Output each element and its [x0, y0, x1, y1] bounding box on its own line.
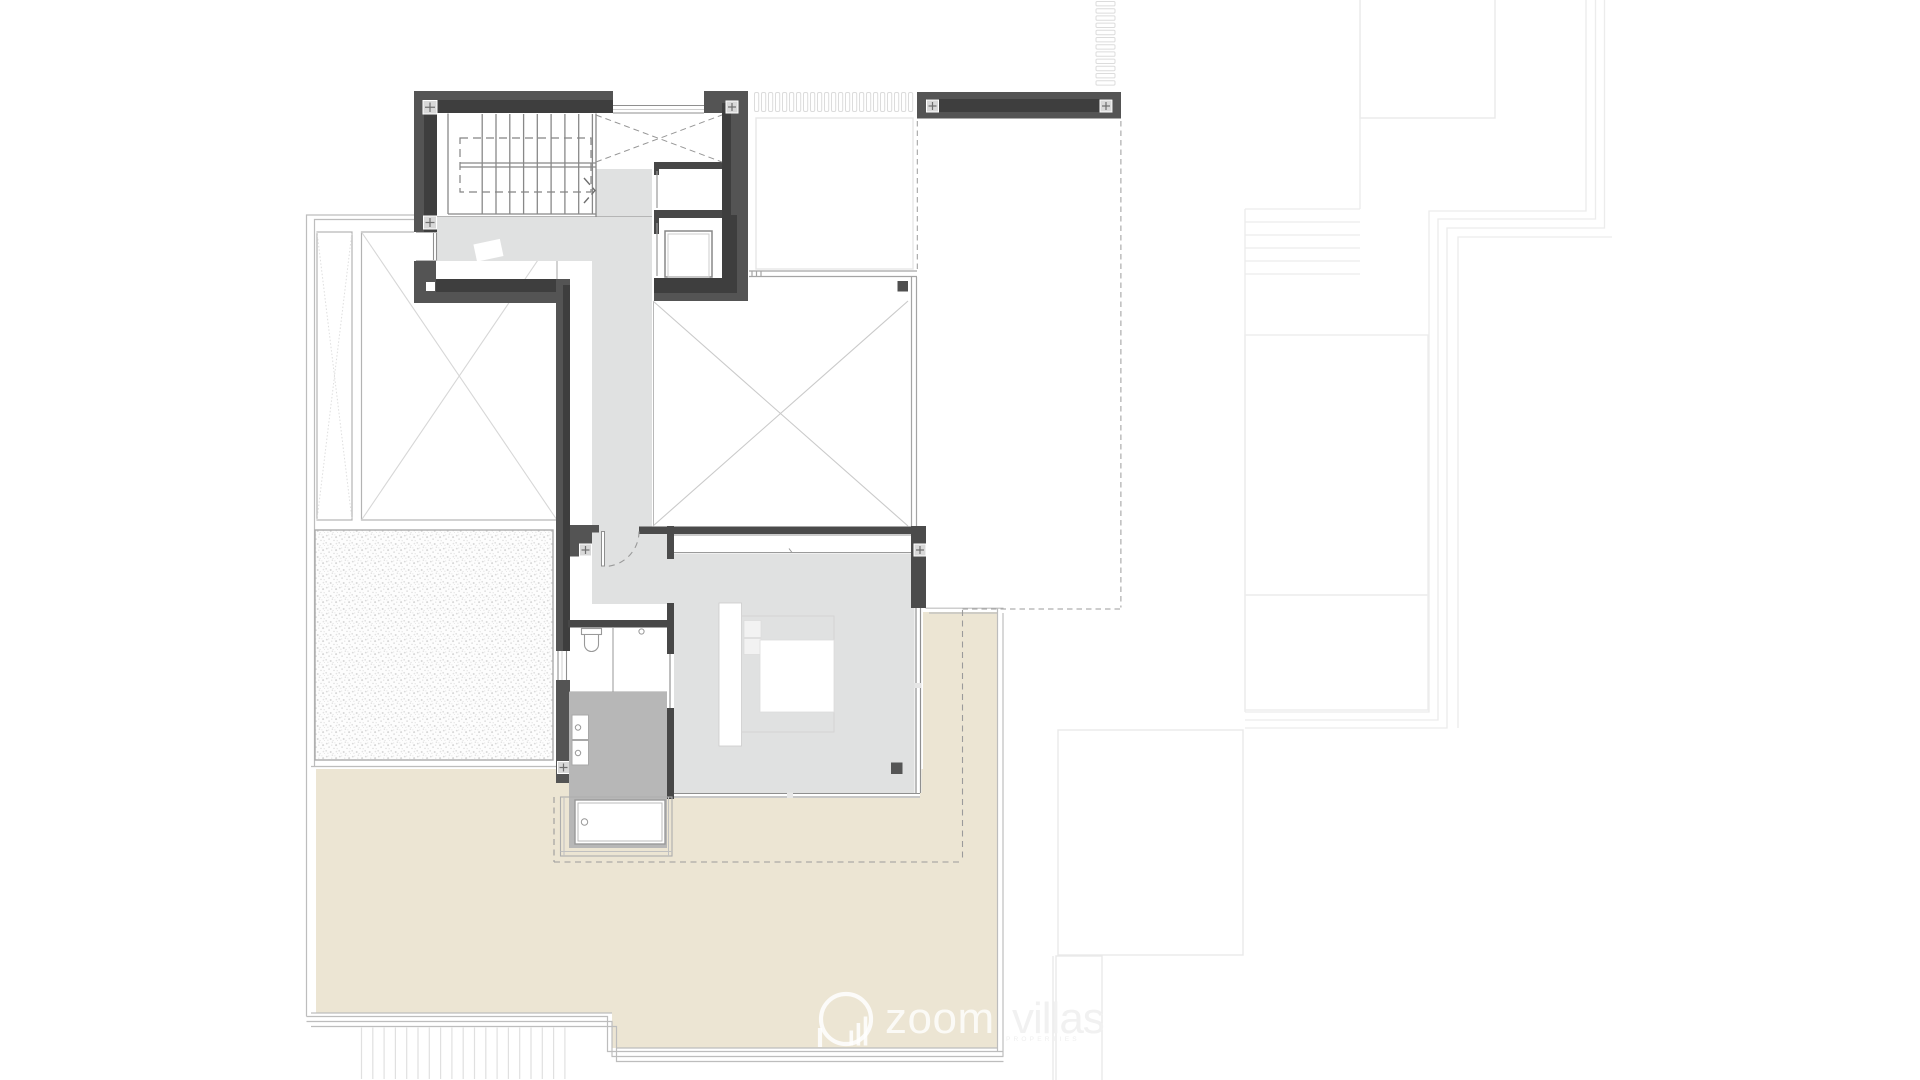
svg-text:PROPERTIES: PROPERTIES	[1006, 1036, 1080, 1043]
svg-text:zoom: zoom	[885, 994, 995, 1043]
